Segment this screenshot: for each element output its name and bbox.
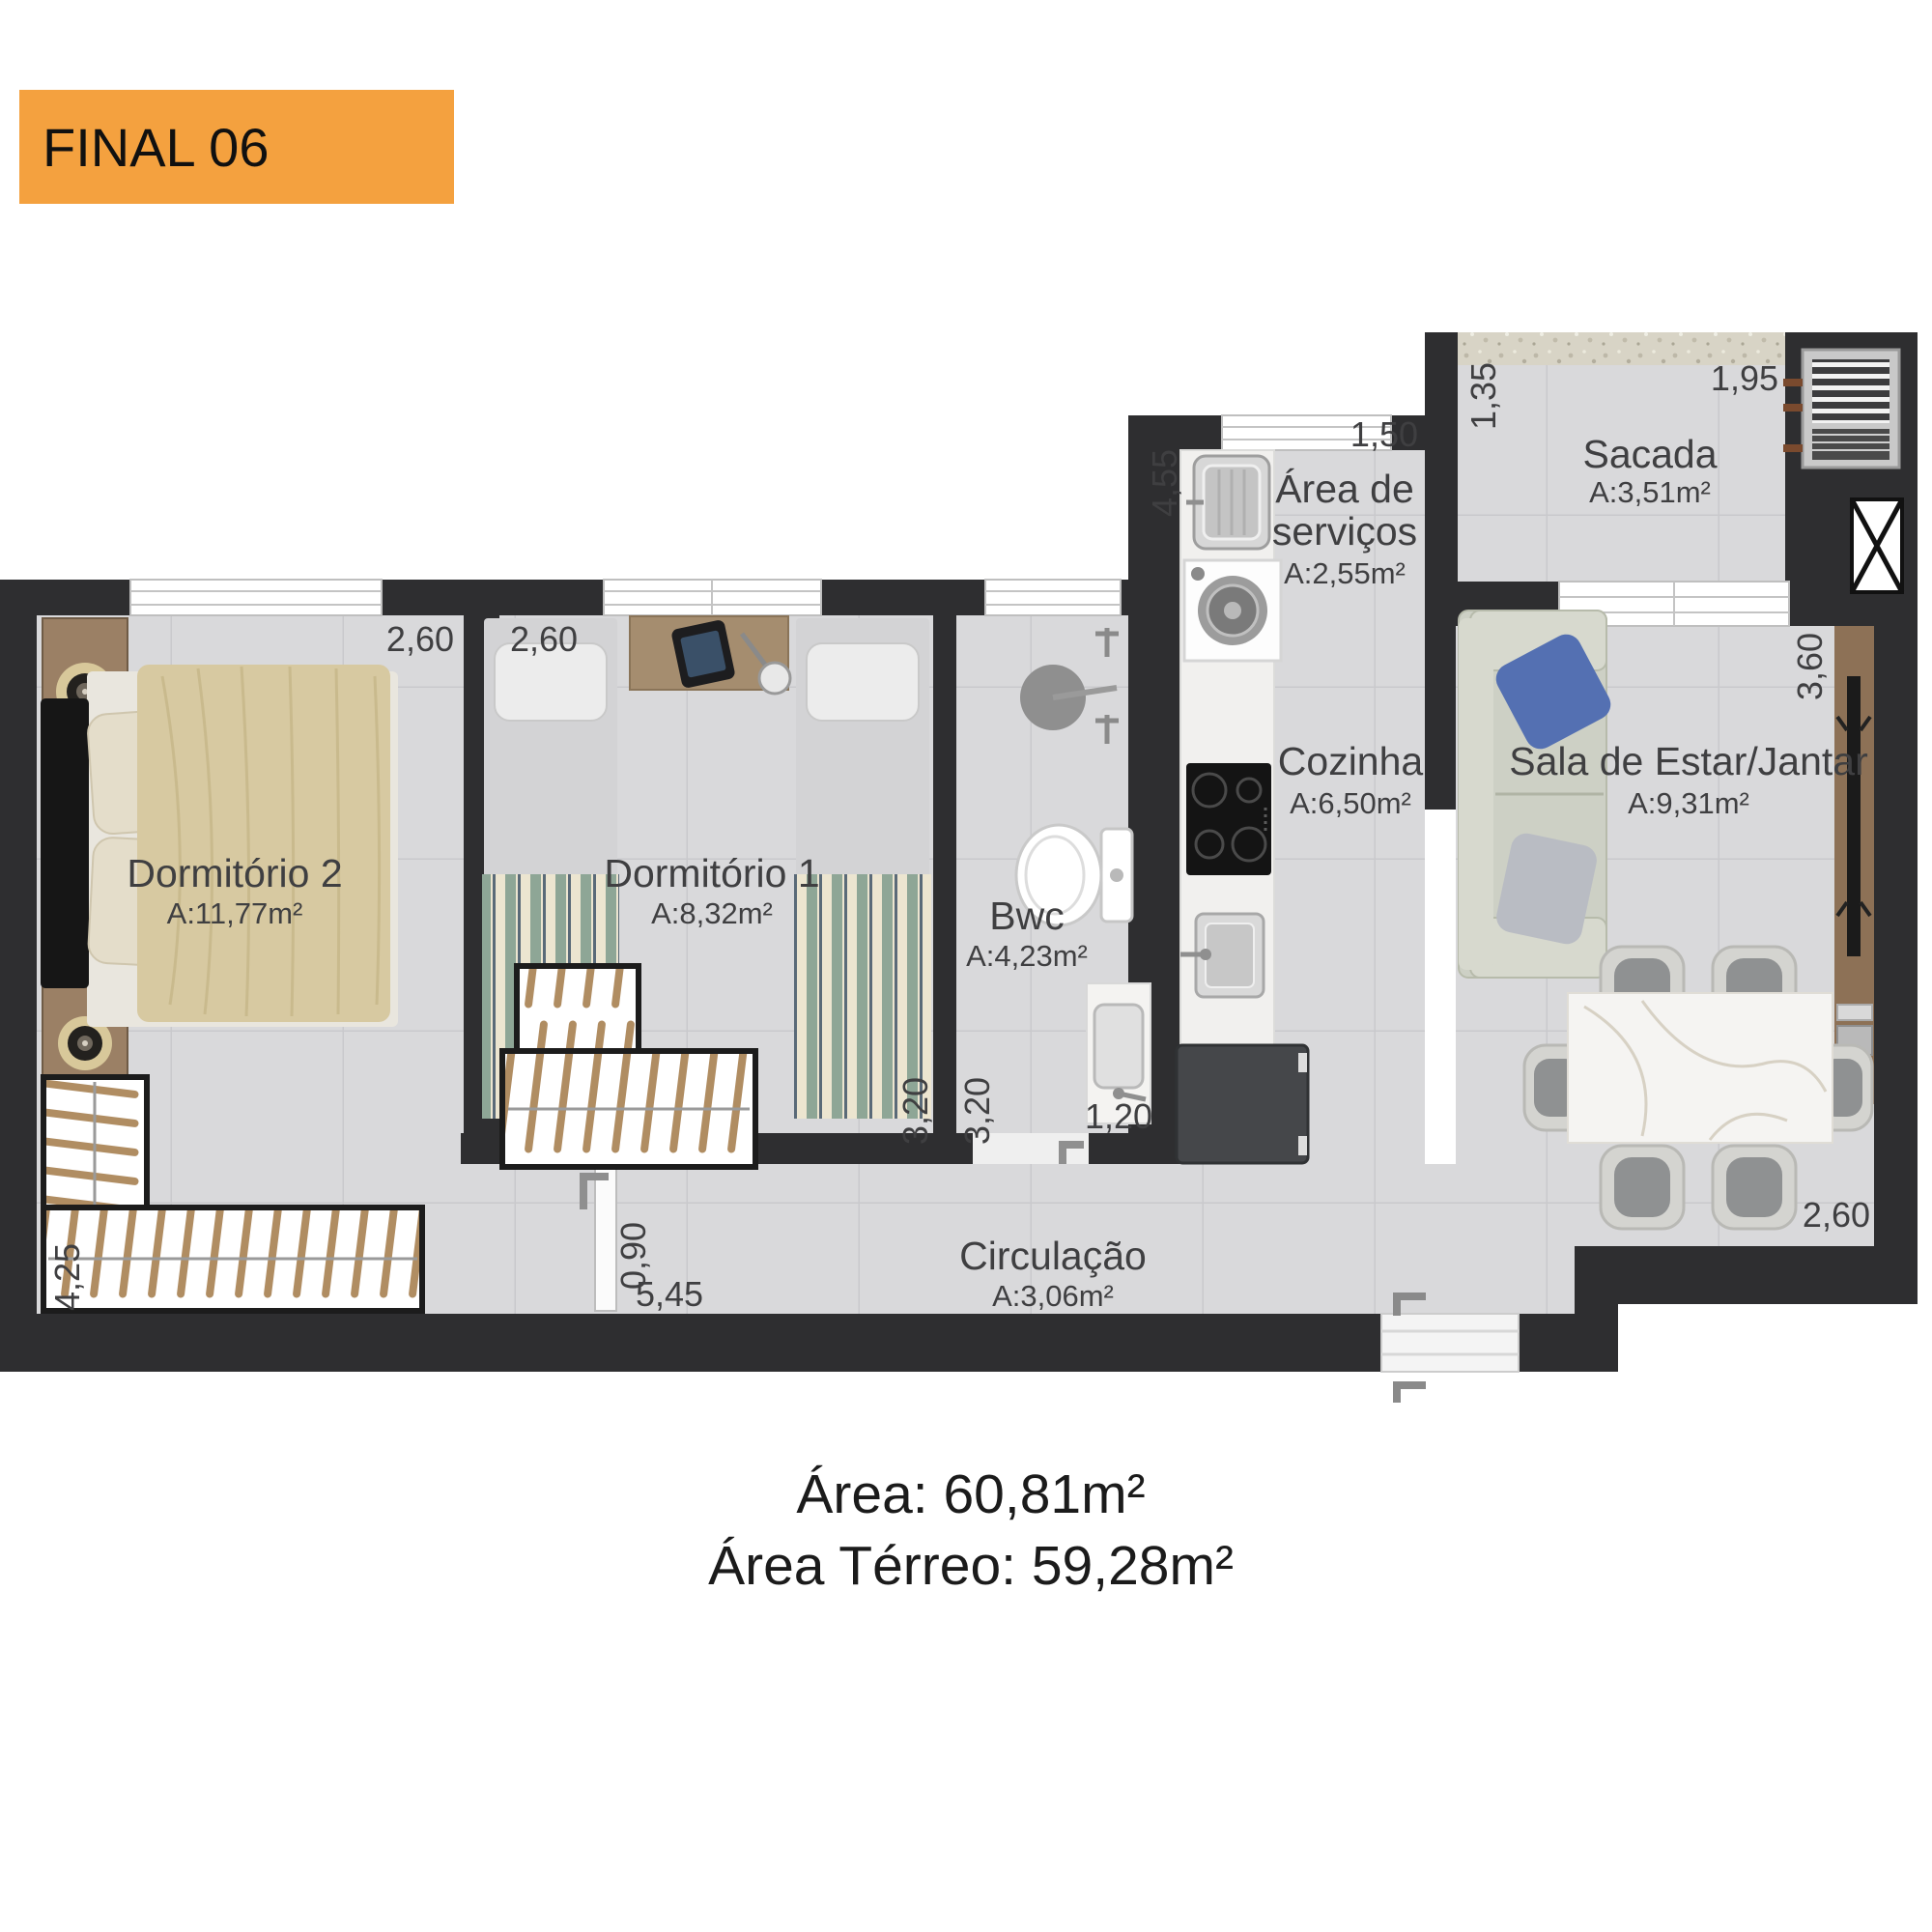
- vanity-sink-icon: [1094, 1005, 1143, 1088]
- dim-balcony-depth: 1,35: [1463, 362, 1503, 430]
- unit-banner: FINAL 06: [19, 90, 454, 204]
- sofa: [1459, 611, 1616, 978]
- dorm2-label: Dormitório 2: [127, 851, 342, 895]
- dorm1-label: Dormitório 1: [604, 851, 819, 895]
- kitchen-label: Cozinha: [1278, 739, 1424, 783]
- pillow-right-bed: [807, 643, 919, 721]
- dim-living-depth: 3,60: [1790, 633, 1830, 700]
- fridge-icon: [1177, 1045, 1308, 1163]
- balcony-area: A:3,51m²: [1589, 475, 1711, 509]
- tv-panel: [1834, 626, 1874, 1104]
- wall-dorm1-bwc: [933, 615, 956, 1133]
- floor-plan-page: Dormitório 2 A:11,77m² Dormitório 1 A:8,…: [0, 0, 1932, 1932]
- dim-dorm1-width: 2,60: [510, 619, 578, 659]
- wall-bottom-left: [0, 1314, 1381, 1372]
- media-console-item: [1837, 1005, 1872, 1020]
- kitchen-area: A:6,50m²: [1290, 786, 1411, 820]
- tv-icon: [1847, 676, 1861, 956]
- wall-strip-bottom-b: [744, 1133, 973, 1164]
- bwc-label: Bwc: [989, 894, 1064, 938]
- total-area-label: Área: 60,81m²: [796, 1463, 1145, 1525]
- dim-dorm1-depth: 3,20: [895, 1077, 935, 1145]
- living-area: A:9,31m²: [1628, 786, 1749, 820]
- wall-step-connector: [1575, 1246, 1618, 1372]
- window-dorm1: [604, 580, 821, 615]
- dim-living-width: 2,60: [1803, 1195, 1870, 1235]
- dim-bwc-depth: 3,20: [957, 1077, 997, 1145]
- balcony-label: Sacada: [1582, 432, 1717, 476]
- dim-kitchen-pass: 1,20: [1085, 1096, 1152, 1136]
- dim-service-window: 1,50: [1350, 414, 1418, 454]
- wall-strip-bottom-c: [1089, 1133, 1180, 1164]
- wall-left: [0, 580, 37, 1372]
- ac-grille-icon: [1812, 359, 1889, 423]
- service-label-line2: serviços: [1272, 509, 1417, 554]
- desk-lamp-icon: [759, 663, 790, 694]
- hall-area: A:3,06m²: [992, 1279, 1114, 1313]
- laundry-sink-icon: [1186, 456, 1269, 549]
- dim-service-depth: 4,55: [1145, 449, 1184, 517]
- sofa-backrest: [1459, 618, 1493, 970]
- dorm2-area: A:11,77m²: [167, 896, 303, 930]
- wall-bottom-living: [1618, 1246, 1918, 1304]
- dining-table: [1568, 993, 1833, 1143]
- hall-label: Circulação: [959, 1234, 1147, 1278]
- washing-machine-icon: [1184, 560, 1281, 661]
- banner-title: FINAL 06: [43, 117, 269, 178]
- cooktop-icon: [1186, 763, 1271, 875]
- service-area: A:2,55m²: [1284, 556, 1406, 590]
- wall-service-top-left: [1128, 415, 1222, 450]
- shaft: [1852, 499, 1902, 592]
- window-bwc: [985, 580, 1121, 615]
- window-dorm2: [130, 580, 382, 615]
- dim-dorm2-width: 2,60: [386, 619, 454, 659]
- service-label-line1: Área de: [1275, 467, 1414, 511]
- dim-balcony-width: 1,95: [1711, 358, 1778, 398]
- floor-plan-canvas: Dormitório 2 A:11,77m² Dormitório 1 A:8,…: [0, 0, 1932, 1932]
- headboard: [41, 698, 89, 988]
- dim-hall-length: 5,45: [636, 1274, 703, 1314]
- wall-kitchen-living: [1425, 450, 1456, 810]
- living-label: Sala de Estar/Jantar: [1509, 739, 1867, 783]
- wall-right: [1874, 580, 1918, 1304]
- bwc-area: A:4,23m²: [966, 939, 1088, 973]
- ground-area-label: Área Térreo: 59,28m²: [708, 1535, 1234, 1597]
- dorm1-area: A:8,32m²: [651, 896, 773, 930]
- dim-dorm2-depth: 4,25: [47, 1243, 87, 1311]
